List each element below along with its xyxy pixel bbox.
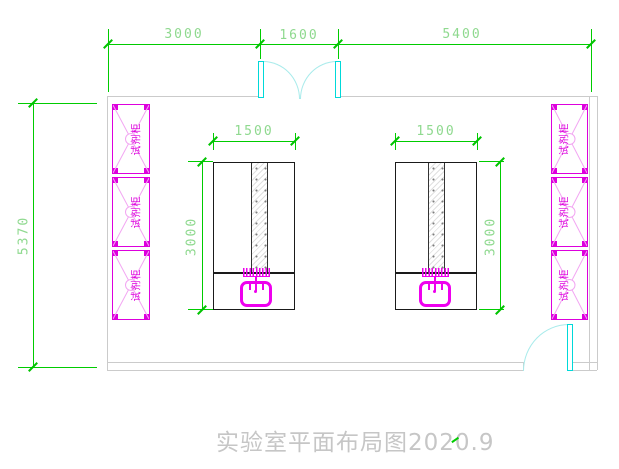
- cabinet-label: 试剂柜: [556, 123, 571, 156]
- drain-dot: [254, 290, 257, 293]
- door-swing-arc-left: [263, 61, 300, 99]
- wall-bottom-inner-left: [107, 362, 523, 363]
- dimension-label-3000: 3000: [154, 27, 214, 42]
- faucet-tap: [441, 283, 443, 290]
- dimension-line-bench-width: [395, 141, 477, 142]
- reagent-shelf-hatch: [251, 163, 268, 272]
- sink-symbol: [418, 268, 452, 309]
- wall-bottom-inner-right: [570, 362, 597, 363]
- dimension-label-5400: 5400: [432, 27, 492, 42]
- drain-dot: [433, 290, 436, 293]
- faucet-tap: [249, 283, 251, 290]
- door-leaf-left: [258, 61, 264, 98]
- door-leaf-right: [335, 61, 341, 98]
- cabinet-label: 试剂柜: [556, 269, 571, 302]
- dimension-label-3000-right: 3000: [484, 207, 499, 267]
- wall-bottom-outer-left: [107, 370, 523, 371]
- reagent-cabinet-unit: 试剂柜: [551, 177, 588, 247]
- door-leaf-bottom: [567, 324, 573, 371]
- door-swing-arc-bottom: [523, 324, 569, 371]
- floor-plan-canvas: 3000 1600 5400 5370 试剂柜 试剂柜 试剂柜 试剂柜: [0, 0, 619, 469]
- faucet-tap: [428, 283, 430, 290]
- reagent-cabinet-unit: 试剂柜: [551, 104, 588, 174]
- dimension-line-bench-depth: [500, 162, 501, 310]
- dimension-label-3000-left: 3000: [185, 207, 200, 267]
- reagent-cabinet-unit: 试剂柜: [112, 104, 150, 174]
- cabinet-label: 试剂柜: [128, 196, 143, 229]
- wall-right-inner: [589, 96, 590, 370]
- wall-top-left-segment: [107, 96, 259, 97]
- dimension-label-1500: 1500: [224, 124, 284, 139]
- reagent-cabinet-unit: 试剂柜: [112, 250, 150, 320]
- extension-line: [108, 29, 109, 92]
- dimension-label-1600: 1600: [269, 28, 329, 43]
- dimension-line-left: [33, 103, 34, 367]
- dimension-label-5370: 5370: [17, 206, 32, 266]
- wall-left: [107, 96, 108, 370]
- cabinet-label: 试剂柜: [128, 269, 143, 302]
- drawing-title: 实验室平面布局图2020.9: [216, 423, 466, 457]
- faucet-tap: [262, 283, 264, 290]
- wall-top-right-segment: [341, 96, 597, 97]
- extension-line: [591, 29, 592, 92]
- sink-drainboard-icon: [422, 268, 449, 277]
- reagent-shelf-hatch: [428, 163, 445, 272]
- sink-basin-icon: [240, 281, 272, 307]
- wall-bottom-outer-right: [570, 370, 597, 371]
- sink-drainboard-icon: [243, 268, 270, 277]
- reagent-cabinet-unit: 试剂柜: [551, 250, 588, 320]
- sink-symbol: [239, 268, 273, 309]
- cabinet-label: 试剂柜: [556, 196, 571, 229]
- wall-right-outer: [597, 96, 598, 370]
- door-swing-arc-right: [300, 61, 337, 99]
- sink-basin-icon: [419, 281, 451, 307]
- dimension-label-1500: 1500: [406, 124, 466, 139]
- reagent-cabinet-unit: 试剂柜: [112, 177, 150, 247]
- cabinet-label: 试剂柜: [128, 123, 143, 156]
- dimension-line-top: [108, 44, 591, 45]
- dimension-line-bench-depth: [202, 162, 203, 310]
- dimension-line-bench-width: [213, 141, 295, 142]
